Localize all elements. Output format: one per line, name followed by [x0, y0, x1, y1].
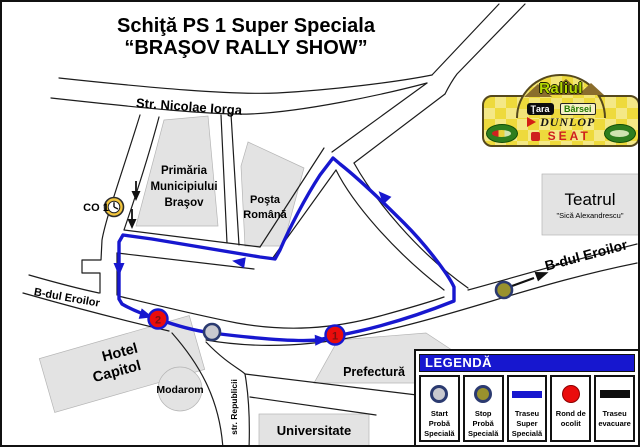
street-label-eroilor-east: B-dul Eroilor: [543, 236, 630, 274]
sponsor-badge-right-logo: [610, 130, 629, 137]
street-label-republicii: str. Republicii: [229, 379, 239, 435]
legend-label: Traseu Super Specială: [512, 409, 542, 438]
legend-label: Rond de ocolit: [556, 409, 586, 429]
legend-title: LEGENDĂ: [419, 354, 635, 372]
roundabout-marker-1: 1: [326, 326, 345, 345]
posta-label-1: Poşta: [250, 194, 281, 206]
legend-cells: Start Probă Specială Stop Probă Specială…: [419, 375, 635, 442]
primaria-label-3: Braşov: [165, 197, 205, 209]
rally-map-sheet: 2 1 CO 1 Str. Nicolae Iorga B-dul Eroilo…: [0, 0, 640, 447]
roundabout-marker-2: 2: [149, 310, 168, 329]
rally-name: Raliul: [482, 80, 640, 97]
prefectura-label: Prefectură: [343, 365, 406, 379]
legend-item-route: Traseu Super Specială: [507, 375, 548, 442]
stop-marker: [496, 282, 512, 298]
start-symbol-icon: [430, 385, 448, 403]
seat-logo-icon: [531, 132, 540, 141]
legend-item-start: Start Probă Specială: [419, 375, 460, 442]
co1-label: CO 1: [83, 202, 109, 214]
street-label-eroilor-west: B-dul Eroilor: [33, 286, 101, 310]
dunlop-logo-icon: [527, 117, 536, 127]
page-title: Schiţă PS 1 Super Speciala “BRAŞOV RALLY…: [2, 15, 490, 60]
start-marker: [204, 324, 220, 340]
roundabout-number: 1: [332, 331, 338, 343]
teatrul-sublabel: "Sică Alexandrescu": [556, 211, 623, 220]
roundabout-number: 2: [155, 315, 161, 327]
universitate-label: Universitate: [277, 423, 351, 438]
evacuation-arrow-icon: [512, 268, 550, 286]
seat-logo-text: SEAT: [548, 129, 591, 143]
evacuation-symbol-icon: [600, 390, 630, 398]
modarom-label: Modarom: [156, 384, 203, 396]
street-label-nicolae-iorga: Str. Nicolae Iorga: [136, 95, 244, 117]
legend-label: Traseu evacuare: [598, 409, 631, 429]
roundabout-symbol-icon: [562, 385, 580, 403]
posta-label-2: Română: [243, 209, 287, 221]
legend-box: LEGENDĂ Start Probă Specială Stop Probă …: [414, 349, 640, 447]
sponsor-badge-left-logo: [492, 130, 511, 137]
legend-label: Stop Probă Specială: [468, 409, 498, 438]
legend-item-stop: Stop Probă Specială: [463, 375, 504, 442]
title-line-2: “BRAŞOV RALLY SHOW”: [2, 37, 490, 59]
sponsor-badge-right: [604, 124, 636, 143]
legend-item-evacuation: Traseu evacuare: [594, 375, 635, 442]
primaria-label-2: Municipiului: [150, 181, 217, 193]
route-arrow-icon: [114, 263, 125, 276]
title-line-1: Schiţă PS 1 Super Speciala: [2, 15, 490, 37]
teatrul-label: Teatrul: [564, 190, 615, 209]
stop-symbol-icon: [474, 385, 492, 403]
primaria-label-1: Primăria: [161, 165, 208, 177]
sponsor-badge-left: [486, 124, 518, 143]
rally-plate: Raliul Ţara Bârsei DUNLOP SEAT: [482, 74, 640, 147]
legend-label: Start Probă Specială: [424, 409, 454, 438]
legend-item-roundabout: Rond de ocolit: [550, 375, 591, 442]
route-symbol-icon: [512, 391, 542, 398]
